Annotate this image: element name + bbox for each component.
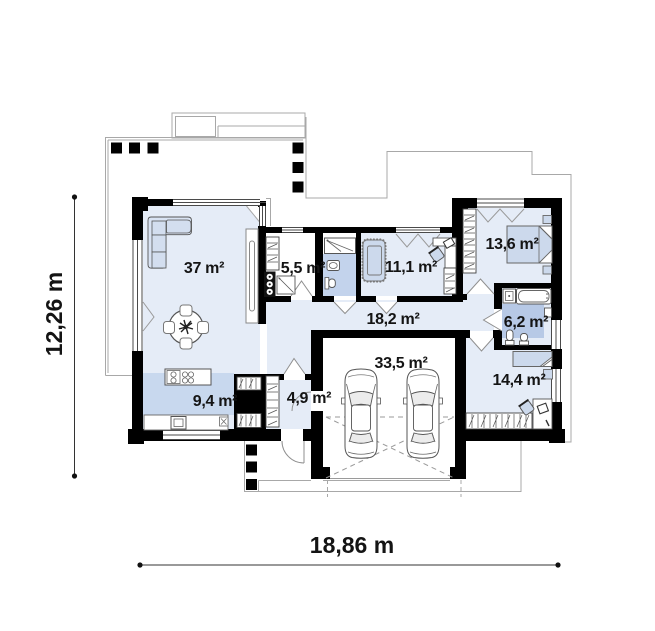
svg-text:18,86 m: 18,86 m	[310, 532, 394, 558]
svg-text:11,1 m²: 11,1 m²	[385, 259, 437, 276]
svg-text:14,4 m²: 14,4 m²	[492, 372, 545, 389]
svg-text:9,4 m²: 9,4 m²	[193, 393, 237, 410]
svg-text:6,2 m²: 6,2 m²	[504, 314, 548, 331]
svg-text:4,9 m²: 4,9 m²	[287, 390, 331, 407]
svg-text:37 m²: 37 m²	[184, 260, 224, 277]
svg-text:18,2 m²: 18,2 m²	[366, 311, 419, 328]
svg-text:13,6 m²: 13,6 m²	[485, 236, 538, 253]
svg-text:12,26 m: 12,26 m	[41, 272, 67, 356]
svg-text:33,5 m²: 33,5 m²	[374, 355, 427, 372]
svg-text:5,5 m²: 5,5 m²	[281, 260, 325, 277]
